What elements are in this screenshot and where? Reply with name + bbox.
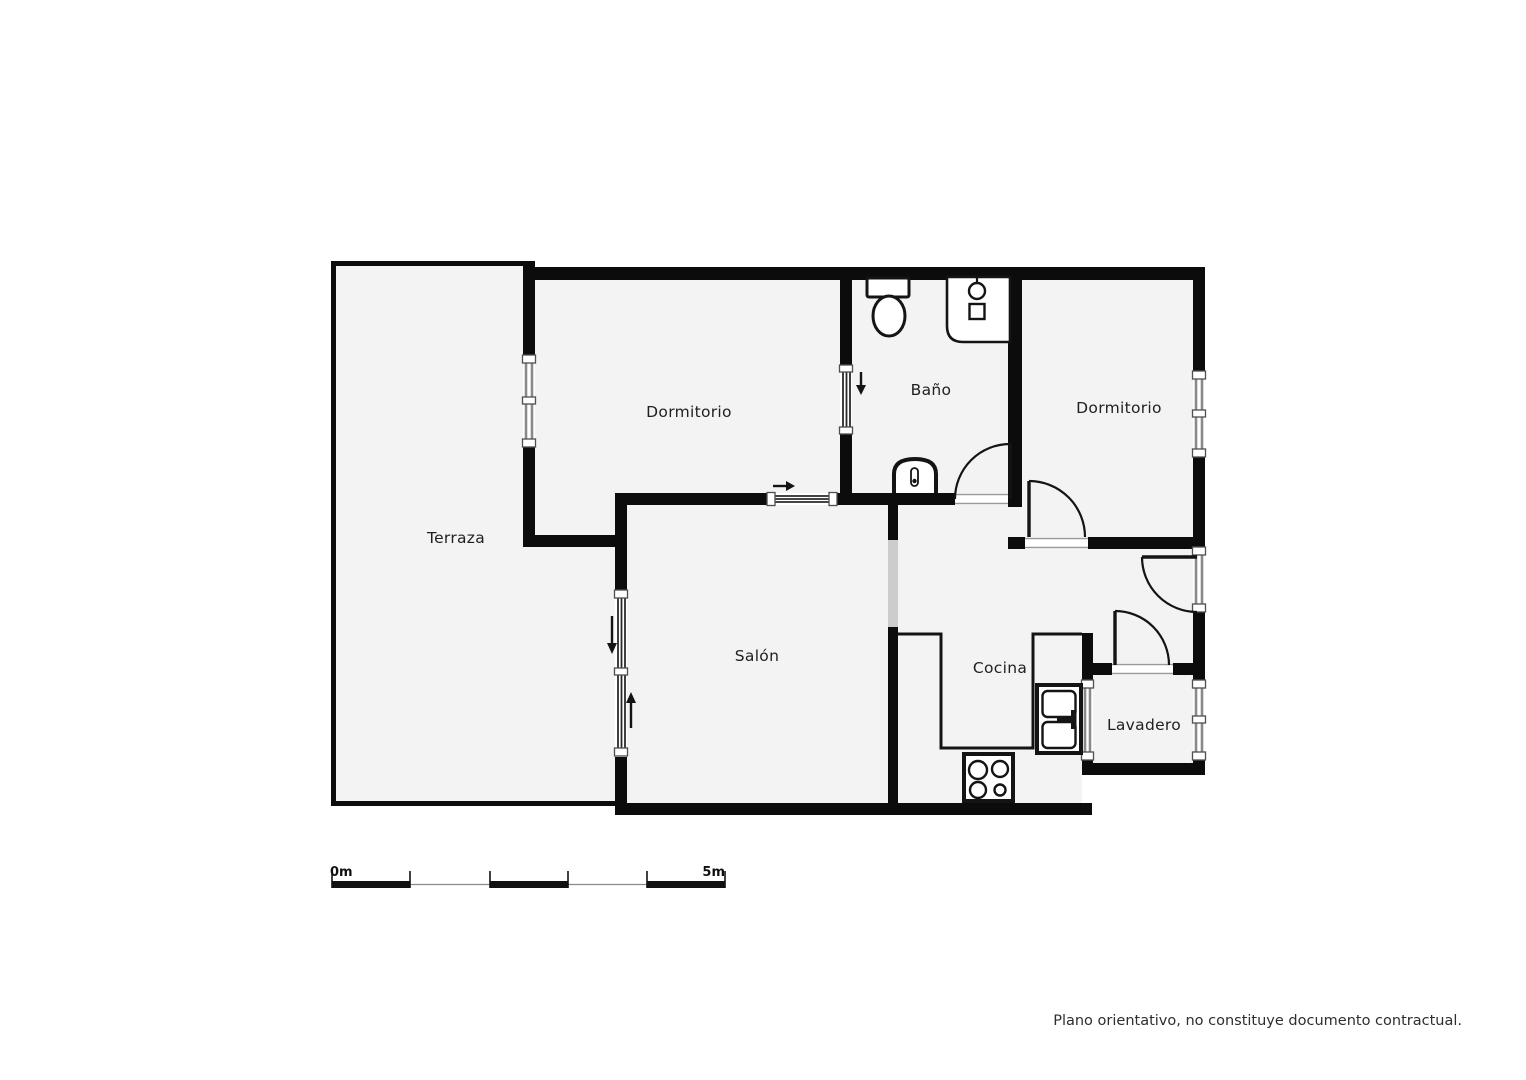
lavadero-label: Lavadero xyxy=(1107,716,1181,734)
disclaimer-text: Plano orientativo, no constituye documen… xyxy=(1053,1013,1462,1029)
stove-icon xyxy=(964,754,1013,801)
lavadero-door-threshold xyxy=(1112,663,1173,675)
lavadero-window xyxy=(1193,680,1206,760)
scale-bar: 0m 5m xyxy=(330,865,725,888)
floor-plan-page: Terraza Dormitorio Baño Dormitorio Salón… xyxy=(0,0,1526,1080)
dormitorio-bano-sliding-door xyxy=(840,365,853,434)
bano-door-threshold xyxy=(955,493,1008,505)
scale-start-label: 0m xyxy=(330,865,353,880)
dormitorio-right-window xyxy=(1193,371,1206,457)
dormitorio-right-label: Dormitorio xyxy=(1076,399,1162,417)
kitchen-sink-icon xyxy=(1037,685,1081,753)
bano-label: Baño xyxy=(911,381,952,399)
dormitorio-left-label: Dormitorio xyxy=(646,403,732,421)
salon-label: Salón xyxy=(735,647,779,665)
bathroom-sink-icon xyxy=(947,277,1010,342)
dormitorio-left-window xyxy=(523,355,536,447)
salon-terraza-sliding-door xyxy=(615,590,628,756)
dormitorio-right-door-threshold xyxy=(1025,537,1088,549)
dormitorio-salon-sliding-door xyxy=(767,493,837,506)
cocina-label: Cocina xyxy=(973,659,1027,677)
cocina-lavadero-window xyxy=(1082,680,1094,760)
terraza-label: Terraza xyxy=(426,529,485,547)
floor-plan-svg: Terraza Dormitorio Baño Dormitorio Salón… xyxy=(0,0,1526,1080)
salon-hall-opening xyxy=(888,540,898,627)
scale-end-label: 5m xyxy=(702,865,725,880)
bidet-icon xyxy=(894,459,936,493)
